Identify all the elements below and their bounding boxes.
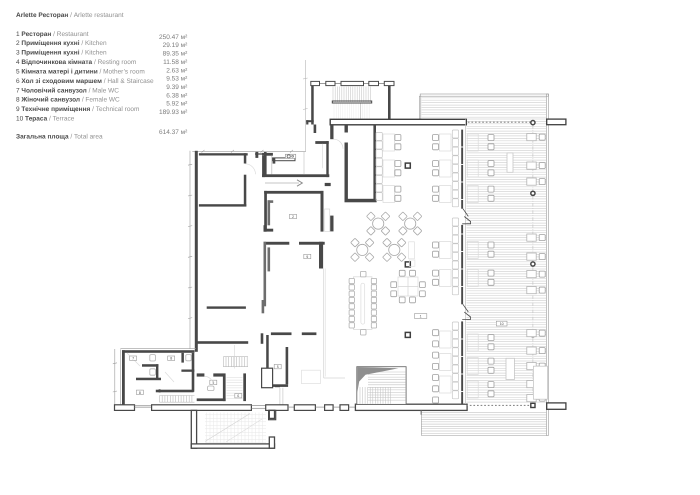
svg-text:7 Чоловічий санвузол / Male WC: 7 Чоловічий санвузол / Male WC xyxy=(16,87,119,94)
svg-text:Arlette Ресторан / Arlette res: Arlette Ресторан / Arlette restaurant xyxy=(16,12,124,19)
svg-text:9: 9 xyxy=(306,255,308,259)
svg-text:9 Технічне приміщення / Techni: 9 Технічне приміщення / Technical room xyxy=(16,106,139,113)
svg-text:29.19 м²: 29.19 м² xyxy=(163,42,189,49)
svg-text:2 Приміщення кухні / Kitchen: 2 Приміщення кухні / Kitchen xyxy=(16,40,107,47)
svg-text:Загальна площа / Total area: Загальна площа / Total area xyxy=(16,134,103,141)
svg-text:9.53 м²: 9.53 м² xyxy=(166,76,188,83)
svg-text:8: 8 xyxy=(170,357,172,361)
svg-text:1: 1 xyxy=(420,314,422,318)
svg-text:5: 5 xyxy=(277,365,279,369)
svg-text:1 Ресторан / Restaurant: 1 Ресторан / Restaurant xyxy=(16,31,89,38)
svg-text:10 Тераса / Terrace: 10 Тераса / Terrace xyxy=(16,116,75,123)
svg-text:8 Жіночий санвузол / Female WC: 8 Жіночий санвузол / Female WC xyxy=(16,97,120,104)
svg-text:4 Відпочинкова кімната / Resti: 4 Відпочинкова кімната / Resting room xyxy=(16,59,136,66)
svg-text:614.37 м²: 614.37 м² xyxy=(159,129,188,136)
svg-text:89.35 м²: 89.35 м² xyxy=(163,51,189,58)
svg-text:2: 2 xyxy=(292,215,294,219)
svg-text:9.39 м²: 9.39 м² xyxy=(166,84,188,91)
svg-text:250.47 м²: 250.47 м² xyxy=(159,34,188,41)
svg-text:11.58 м²: 11.58 м² xyxy=(163,59,188,66)
svg-text:3 Приміщення кухні / Kitchen: 3 Приміщення кухні / Kitchen xyxy=(16,50,107,57)
svg-text:5 Кімната матері і дитини / Mo: 5 Кімната матері і дитини / Mother’s roo… xyxy=(16,69,145,76)
svg-text:6 Хол зі сходовим маршем / Hal: 6 Хол зі сходовим маршем / Hall & Stairc… xyxy=(16,78,154,85)
svg-text:6: 6 xyxy=(237,394,239,398)
svg-text:5.92 м²: 5.92 м² xyxy=(166,101,188,108)
svg-text:10: 10 xyxy=(500,322,504,326)
svg-text:2.63 м²: 2.63 м² xyxy=(166,67,188,74)
svg-text:7: 7 xyxy=(132,357,134,361)
svg-text:189.93 м²: 189.93 м² xyxy=(159,109,188,116)
svg-text:8: 8 xyxy=(139,391,141,395)
svg-text:6.38 м²: 6.38 м² xyxy=(166,92,188,99)
